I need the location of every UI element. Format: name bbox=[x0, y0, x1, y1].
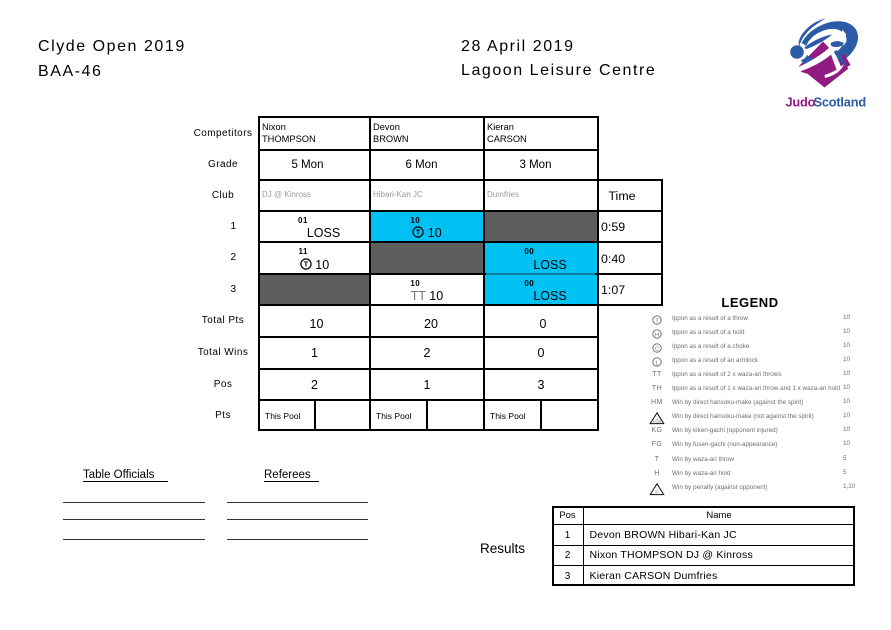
svg-text:L: L bbox=[655, 360, 658, 366]
svg-text:T: T bbox=[304, 260, 309, 269]
svg-text:Judo: Judo bbox=[786, 95, 816, 110]
svg-text:C: C bbox=[655, 346, 659, 352]
svg-text:HM: HM bbox=[653, 419, 661, 425]
svg-text:Scotland: Scotland bbox=[814, 95, 866, 110]
svg-text:T: T bbox=[416, 228, 421, 237]
svg-text:P: P bbox=[655, 489, 659, 495]
svg-text:H: H bbox=[655, 332, 659, 338]
